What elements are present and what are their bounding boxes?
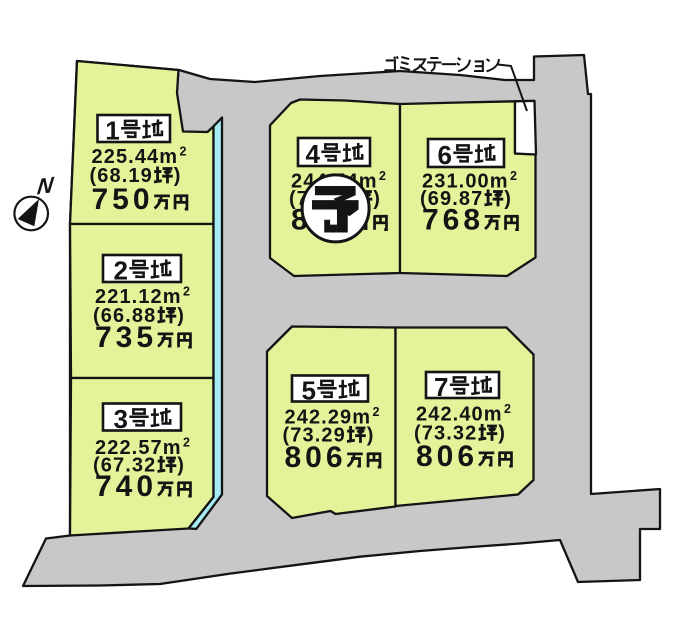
svg-text:2: 2 [183,436,190,450]
svg-text:2: 2 [114,256,128,286]
svg-text:7: 7 [434,372,448,402]
svg-text:4: 4 [306,139,321,169]
svg-text:2: 2 [373,405,380,419]
svg-text:): ) [498,423,505,445]
svg-text:768: 768 [422,204,484,237]
svg-text:): ) [174,165,181,187]
svg-text:2: 2 [504,402,511,416]
svg-text:): ) [177,305,184,327]
svg-text:): ) [177,455,184,477]
svg-text:2: 2 [510,169,517,183]
svg-text:2: 2 [379,169,386,183]
svg-text:5: 5 [302,376,316,406]
svg-text:3: 3 [114,404,128,434]
svg-text:2: 2 [180,145,187,159]
svg-text:): ) [504,188,511,210]
svg-text:6: 6 [438,140,452,170]
svg-text:750: 750 [92,183,154,216]
svg-text:735: 735 [95,321,157,354]
svg-text:): ) [367,425,374,447]
svg-text:1: 1 [105,116,119,146]
svg-text:806: 806 [285,441,347,474]
svg-text:740: 740 [95,470,157,503]
svg-text:806: 806 [416,440,478,473]
svg-text:2: 2 [183,285,190,299]
svg-text:): ) [373,188,380,210]
